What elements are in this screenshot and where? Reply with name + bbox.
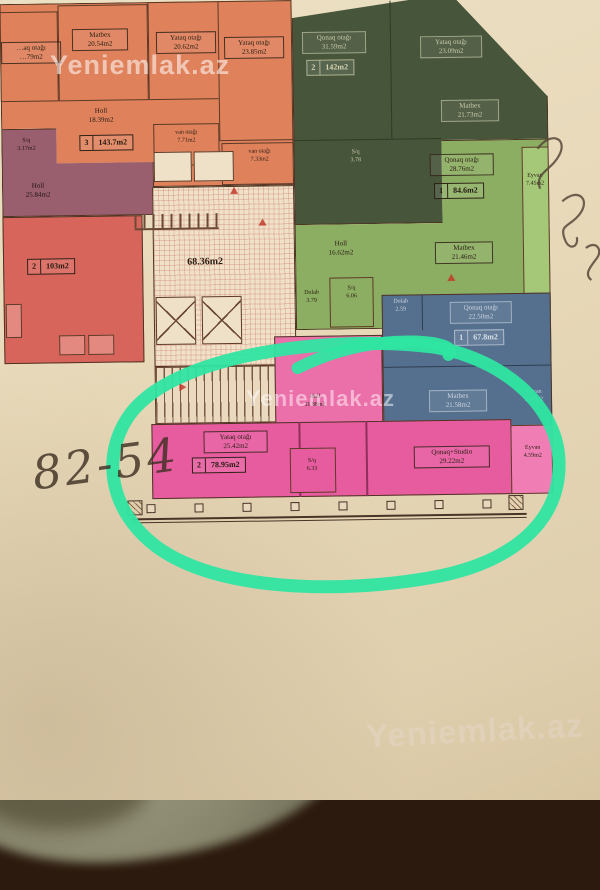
room-name: Eyvan <box>527 173 542 179</box>
badge-unit-red: 2 103m2 <box>27 258 75 275</box>
core-area-value: 68.36m2 <box>187 256 223 267</box>
room-area: 29.22m2 <box>439 456 464 464</box>
utility-box <box>194 151 234 182</box>
room-area: 20.54m2 <box>88 39 113 47</box>
room-name: Dolab <box>393 299 408 305</box>
label-holl-orange: Holl 18.39m2 <box>79 106 123 124</box>
floor-plan: …aq otağı …79m2 Matbex 20.54m2 Yataq ota… <box>0 0 600 804</box>
room-name: Yataq otağı <box>238 38 270 46</box>
room-name: …aq otağı <box>16 44 45 52</box>
room-area: 7.33m2 <box>251 156 269 162</box>
foundation-pad <box>127 500 142 515</box>
room-name: Qonaq otağı <box>317 33 352 41</box>
foundation-column <box>386 501 395 510</box>
room-area: 2.59 <box>395 306 406 312</box>
room-area: 21.73m2 <box>458 110 483 118</box>
label-van2-orange: van otağı 7.33m2 <box>236 148 284 164</box>
foundation-column <box>242 503 251 512</box>
room-name: van otağı <box>175 129 197 135</box>
room-area: 6.06 <box>346 293 357 299</box>
badge-unit-lightgreen: 1 84.6m2 <box>434 182 484 199</box>
label-sq-purple: S/q 3.17m2 <box>9 138 43 153</box>
label-eyvan-pink: Eyvan 4.59m2 <box>518 445 548 460</box>
foundation-column <box>194 503 203 512</box>
room-area: 18.39m2 <box>89 115 114 123</box>
badge-room-count: 2 <box>28 260 41 274</box>
label-qonaq-blue: Qonaq otağı 22.50m2 <box>450 301 512 323</box>
foundation-column <box>290 502 299 511</box>
door-mark <box>258 218 266 225</box>
room-area: 21.58m2 <box>446 400 471 408</box>
label-core-area: 68.36m2 <box>165 256 245 270</box>
badge-unit-blue: 1 67.8m2 <box>454 329 504 346</box>
room-area: 20.62m2 <box>174 42 199 50</box>
room-area: 25.84m2 <box>26 190 51 198</box>
room-area: 23.85m2 <box>242 47 267 55</box>
vent-comb <box>134 213 218 230</box>
room-area: 25.42m2 <box>223 442 248 450</box>
badge-room-count: 3 <box>80 136 93 150</box>
room-name: Eyvan <box>525 445 540 451</box>
room-area: 3.46m2 <box>525 396 543 402</box>
label-sq-pink: S/q 6.33 <box>298 458 326 473</box>
room-name: Yataq otağı <box>220 433 252 441</box>
badge-room-count: 1 <box>435 184 448 198</box>
room-area: 31.59m2 <box>322 42 347 50</box>
label-clipped-room: …aq otağı …79m2 <box>1 41 61 63</box>
room-area: 3.79 <box>306 297 317 303</box>
door-mark <box>179 383 186 391</box>
label-yataq2-orange: Yataq otağı 23.85m2 <box>224 36 284 58</box>
label-matbex-orange: Matbex 20.54m2 <box>72 28 128 50</box>
room-yataq2-orange <box>217 0 293 141</box>
room-area: …79m2 <box>20 52 43 60</box>
label-qonaq-darkgreen: Qonaq otağı 31.59m2 <box>302 31 366 53</box>
room-name: Matbex <box>89 31 111 39</box>
label-eyvan-blue: Eyvan 3.46m2 <box>517 389 551 404</box>
room-area: 7.45m2 <box>526 180 544 186</box>
paper-sheet: …aq otağı …79m2 Matbex 20.54m2 Yataq ota… <box>0 0 600 800</box>
label-matbex-darkgreen: Matbex 21.73m2 <box>441 99 499 121</box>
kitchen-fixture <box>6 304 22 338</box>
badge-total-area: 142m2 <box>320 60 353 74</box>
label-matbex-lightgreen: Matbex 21.46m2 <box>435 241 493 263</box>
room-name: Qonaq otağı <box>463 303 498 311</box>
foundation-column <box>338 501 347 510</box>
label-van1-orange: van otağı 7.71m2 <box>159 129 213 145</box>
room-name: Matbex <box>453 244 475 252</box>
room-name: Yataq otağı <box>435 38 467 46</box>
badge-room-count: 1 <box>455 331 468 345</box>
room-matbex-orange <box>57 4 148 101</box>
room-area: 28.76m2 <box>449 164 474 172</box>
door-mark <box>447 274 455 281</box>
label-eyvan-lightgreen: Eyvan 7.45m2 <box>518 172 552 187</box>
utility-box <box>154 152 192 183</box>
room-name: S/q <box>308 458 316 464</box>
room-area: 11.88m2 <box>305 401 326 407</box>
room-name: Dolab <box>304 290 319 296</box>
room-name: Matbex <box>459 101 481 109</box>
elevator-shaft <box>202 296 243 345</box>
label-matbex-blue: Matbex 21.58m2 <box>429 389 487 411</box>
label-holl-lightgreen: Holl 16.62m2 <box>319 239 363 257</box>
badge-unit-orange: 3 143.7m2 <box>79 134 133 151</box>
room-name: Holl <box>32 182 45 190</box>
foundation-pad <box>508 495 523 510</box>
badge-unit-pink: 2 78.95m2 <box>192 457 246 474</box>
unit-pink-holl <box>274 335 383 427</box>
label-qonaq-studio-pink: Qonaq+Studio 29.22m2 <box>414 445 490 468</box>
foundation-column <box>146 504 155 513</box>
room-name: Holl <box>310 394 321 400</box>
handwriting-scribble <box>586 245 600 280</box>
badge-room-count: 2 <box>193 458 206 472</box>
label-yataq1-orange: Yataq otağı 20.62m2 <box>156 31 216 53</box>
label-yataq-darkgreen: Yataq otağı 23.09m2 <box>420 35 482 57</box>
room-name: Holl <box>335 239 348 247</box>
room-area: 3.17m2 <box>17 145 35 151</box>
label-qonaq-lightgreen: Qonaq otağı 28.76m2 <box>430 153 494 175</box>
kitchen-fixture <box>88 335 114 355</box>
badge-total-area: 84.6m2 <box>448 183 483 197</box>
room-area: 6.33 <box>307 465 318 471</box>
room-area: 7.71m2 <box>177 137 195 143</box>
room-eyvan-lightgreen <box>522 147 551 307</box>
foundation-column <box>482 499 491 508</box>
elevator-shaft <box>156 296 197 345</box>
label-dolab-lightgreen: Dolab 3.79 <box>297 290 325 305</box>
badge-total-area: 78.95m2 <box>206 458 245 473</box>
label-sq-lightgreen: S/q 6.06 <box>337 285 365 300</box>
label-yataq-pink: Yataq otağı 25.42m2 <box>203 430 267 452</box>
room-name: Qonaq+Studio <box>431 448 472 457</box>
room-name: S/q <box>347 285 355 291</box>
badge-total-area: 67.8m2 <box>468 330 503 344</box>
label-holl-purple: Holl 25.84m2 <box>16 181 60 199</box>
badge-unit-darkgreen: 2 142m2 <box>306 59 354 76</box>
foundation-column <box>434 500 443 509</box>
label-dolab-blue: Dolab 2.59 <box>386 298 416 313</box>
photo-of-floor-plan: { "watermark": { "brand": "Yeniemlak.az"… <box>0 0 600 800</box>
room-name: S/q <box>352 149 360 155</box>
room-name: Yataq otağı <box>170 33 202 41</box>
room-name: Qonaq otağı <box>444 156 479 164</box>
room-name: Holl <box>95 107 108 115</box>
kitchen-fixture <box>59 335 85 355</box>
room-area: 23.09m2 <box>439 46 464 54</box>
room-area: 22.50m2 <box>468 312 493 320</box>
room-name: van otağı <box>248 148 270 154</box>
room-area: 21.46m2 <box>452 252 477 260</box>
badge-total-area: 103m2 <box>41 259 74 273</box>
room-area: 16.62m2 <box>329 248 354 256</box>
label-holl-pink: Holl 11.88m2 <box>293 394 337 410</box>
room-area: 3.78 <box>350 157 361 163</box>
label-sq-darkgreen: S/q 3.78 <box>342 149 370 164</box>
room-name: S/q <box>22 138 30 144</box>
room-name: Matbex <box>447 392 469 400</box>
room-area: 4.59m2 <box>524 452 542 458</box>
handwriting-scribble <box>562 195 584 247</box>
room-name: Eyvan <box>526 389 541 395</box>
door-mark <box>230 187 238 194</box>
badge-total-area: 143.7m2 <box>93 135 132 150</box>
badge-room-count: 2 <box>307 61 320 75</box>
